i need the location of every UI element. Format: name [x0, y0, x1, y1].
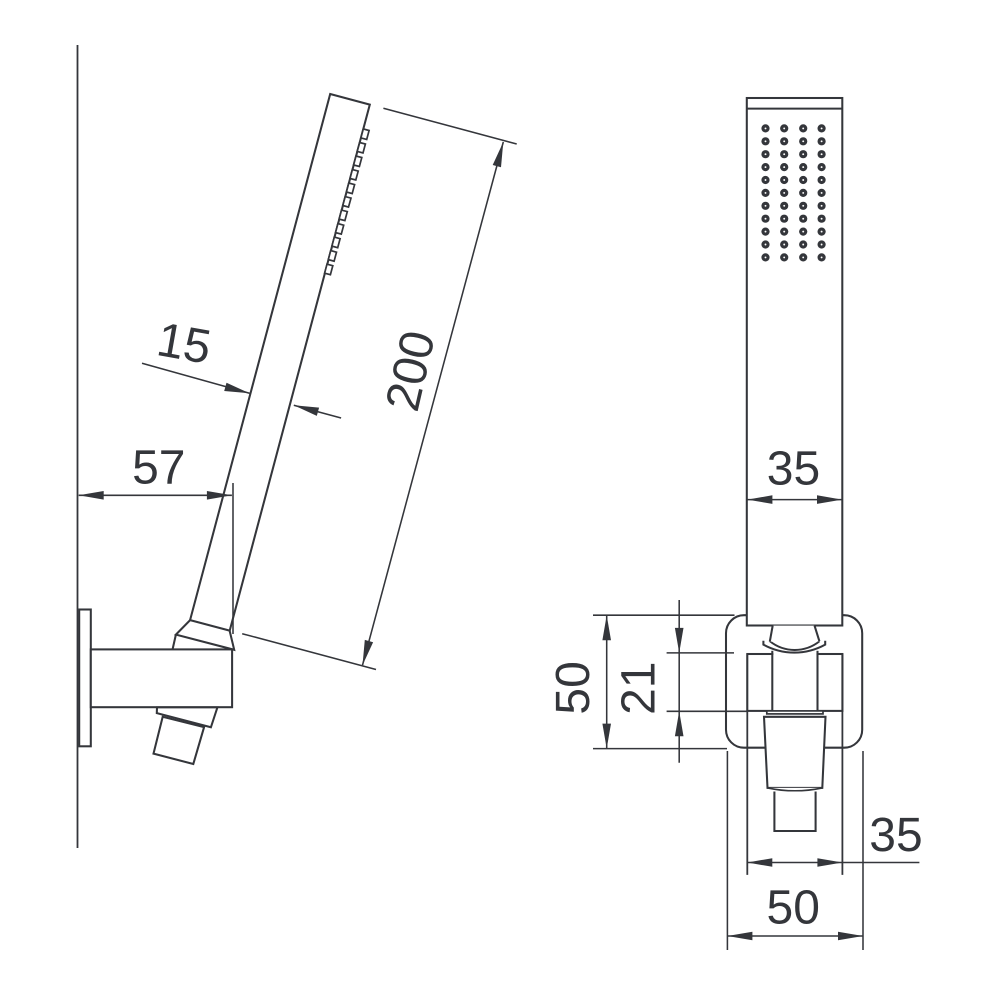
svg-text:15: 15: [153, 313, 215, 374]
svg-text:21: 21: [612, 662, 665, 715]
svg-text:50: 50: [547, 661, 600, 714]
svg-text:50: 50: [767, 881, 820, 934]
svg-text:35: 35: [767, 443, 820, 496]
svg-text:200: 200: [376, 326, 446, 416]
svg-text:35: 35: [869, 809, 922, 862]
svg-text:57: 57: [132, 441, 185, 494]
